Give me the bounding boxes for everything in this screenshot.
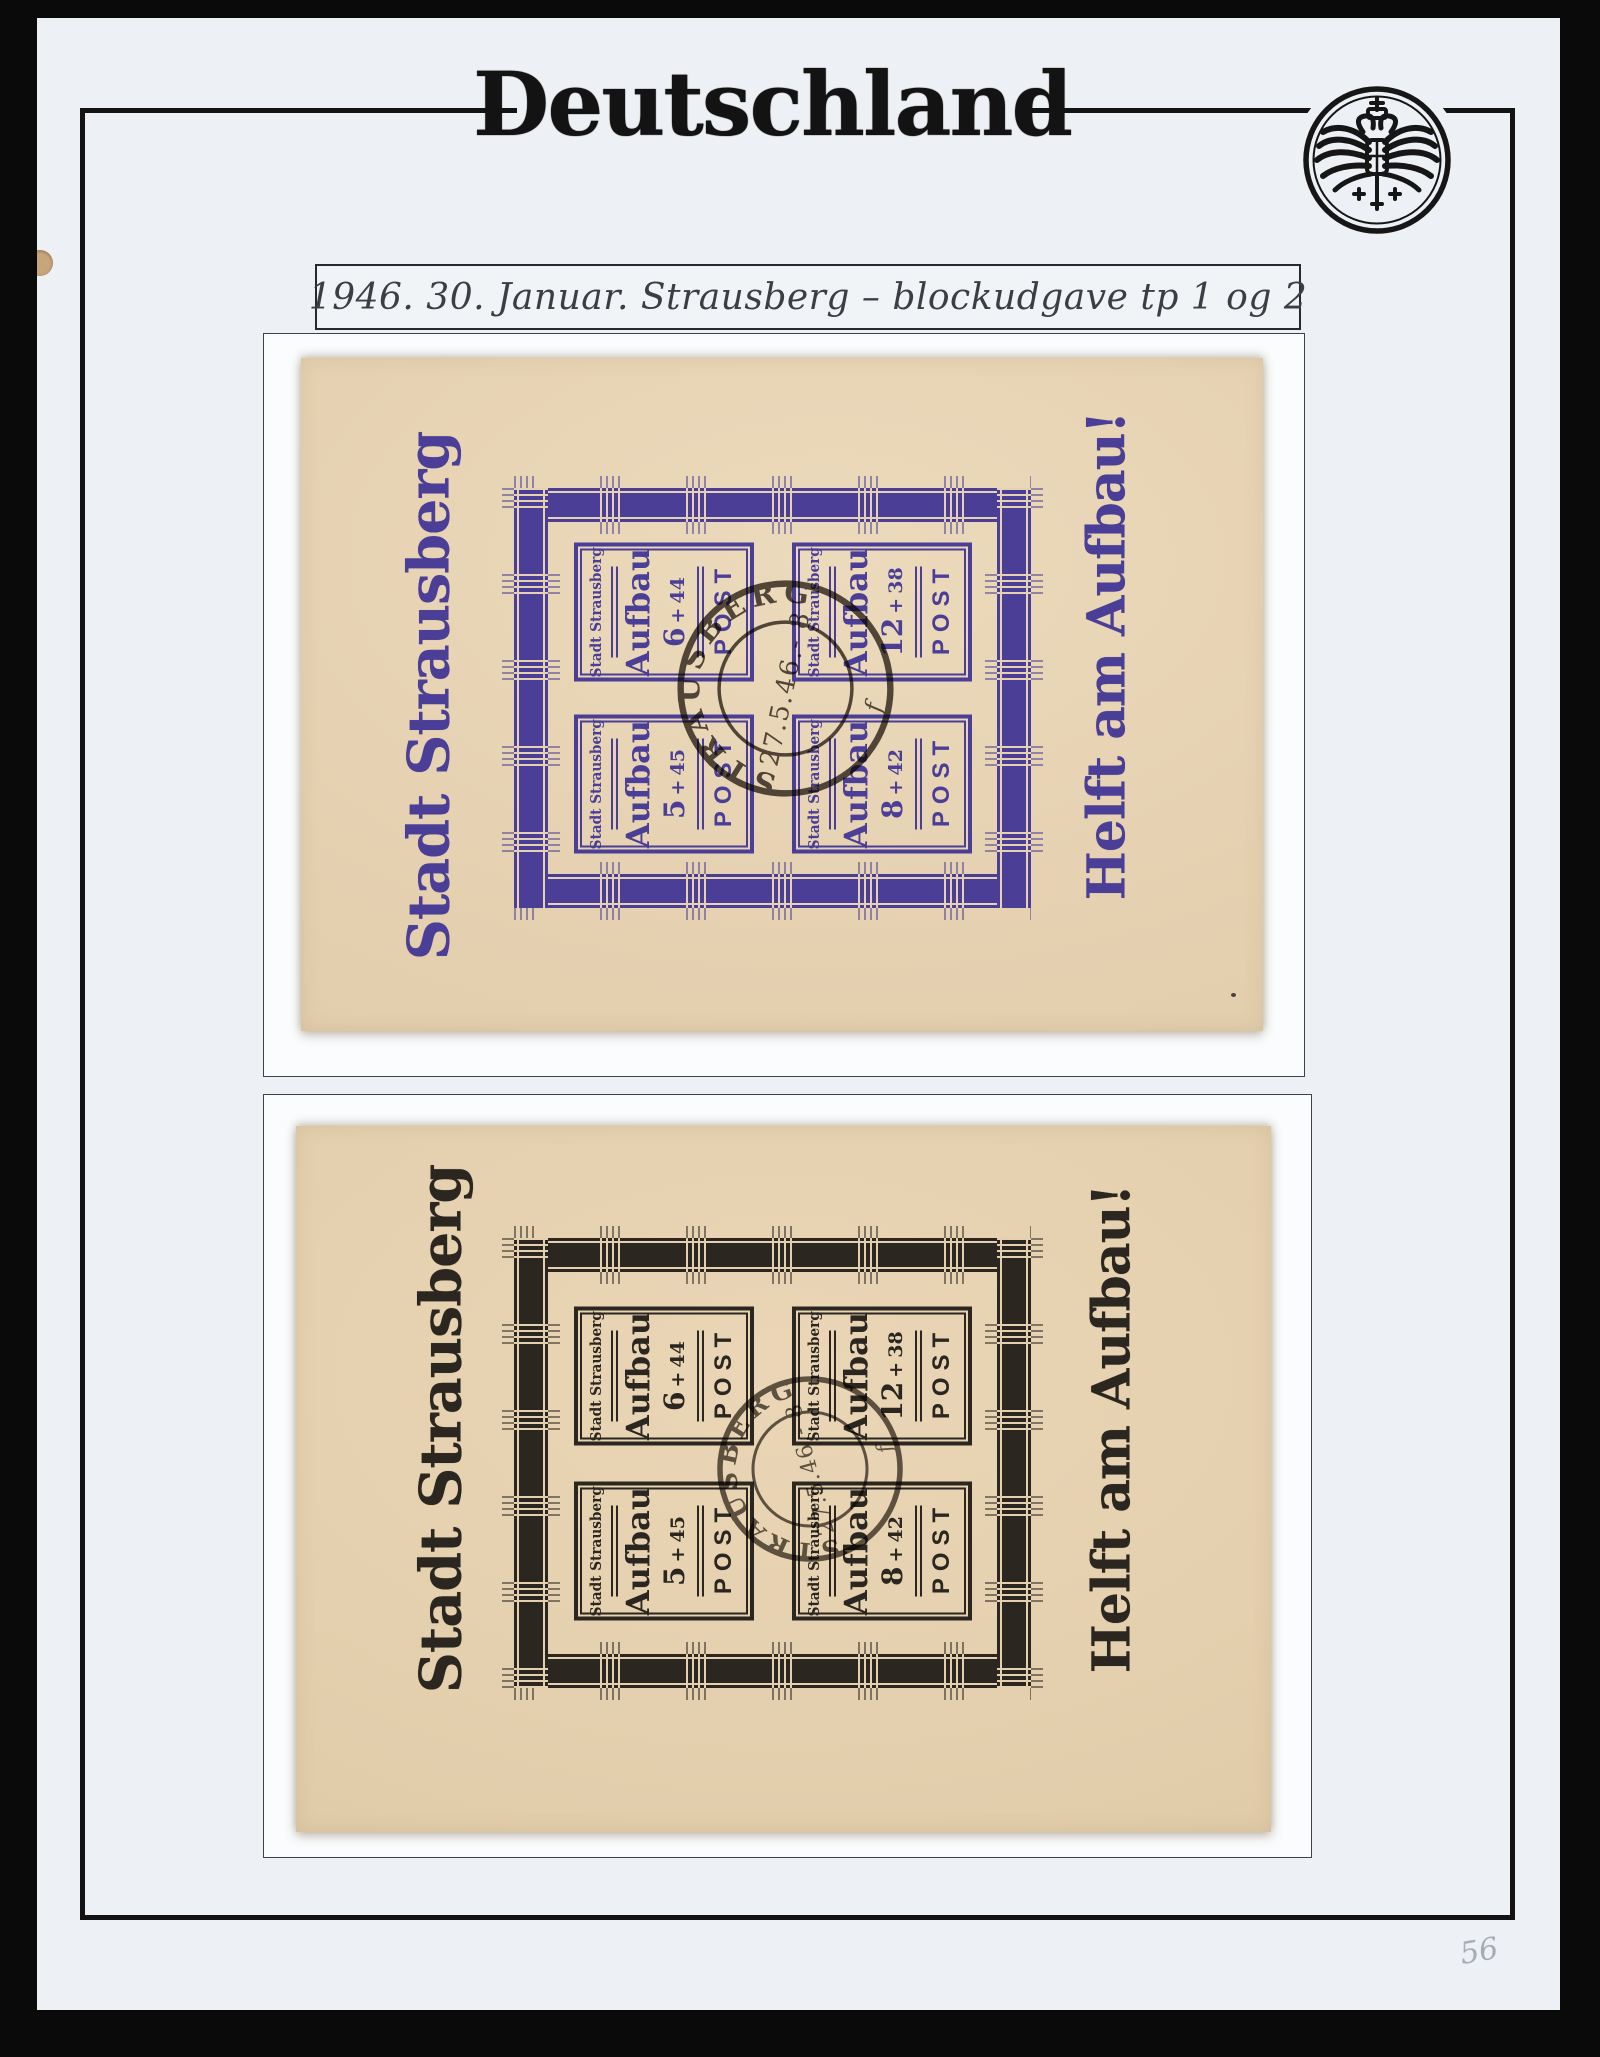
caption-text: 1946. 30. Januar. Strausberg – blockudga… (309, 277, 1307, 318)
plaid-band-right (997, 1238, 1031, 1688)
page-title: Deutschland (517, 40, 1027, 168)
stamp-value: 6 + 44 (658, 1341, 691, 1411)
value-main: 5 (658, 799, 691, 818)
stamp-word: Aufbau (623, 1486, 652, 1614)
stamp-rule (915, 1330, 922, 1421)
value-addon: 45 (667, 1516, 689, 1542)
stamp-rule (697, 1505, 704, 1596)
value-plus: + (667, 1546, 689, 1562)
sheet1-right-text: Helft am Aufbau! (1077, 412, 1138, 901)
plaid-band-top (514, 1238, 1031, 1272)
sheet2-right-text: Helft am Aufbau! (1082, 1185, 1143, 1674)
postmark-date: 27.5.46.- 8 (755, 608, 817, 769)
page-title-text: Deutschland (473, 52, 1071, 156)
stamp-post: POST (927, 562, 955, 662)
value-main: 8 (876, 1566, 909, 1585)
value-main: 8 (876, 799, 909, 818)
stamp-post: POST (927, 734, 955, 834)
plaid-band-left (514, 488, 548, 908)
stamp-word: Aufbau (623, 548, 652, 676)
value-main: 6 (658, 1391, 691, 1410)
stamp-header: Stadt Strausberg (588, 547, 605, 677)
imperial-eagle-icon (1297, 80, 1457, 240)
stamp-rule (610, 567, 617, 658)
caption-box: 1946. 30. Januar. Strausberg – blockudga… (315, 264, 1301, 330)
postmark-date: 27.5.46.- 8 (781, 1400, 840, 1538)
value-plus: + (885, 780, 907, 796)
stamp-rule (915, 739, 922, 830)
value-main: 5 (658, 1566, 691, 1585)
mount-card-2: Stadt Strausberg Helft am Aufbau! Stadt … (263, 1094, 1312, 1858)
stamp-value: 5 + 45 (658, 1516, 691, 1586)
stamp-header: Stadt Strausberg (588, 1485, 605, 1615)
stamp-header: Stadt Strausberg (588, 1310, 605, 1440)
value-addon: 44 (667, 1341, 689, 1367)
stamp-word: Aufbau (623, 720, 652, 848)
plaid-band-bottom (514, 1654, 1031, 1688)
paper-fleck (1231, 993, 1236, 997)
punch-hole (37, 250, 53, 276)
sheet2-left-text: Stadt Strausberg (408, 1165, 475, 1693)
souvenir-sheet-1: Stadt Strausberg Helft am Aufbau! Stadt … (301, 358, 1263, 1031)
stamp-rule (610, 1505, 617, 1596)
eagle-seal (1293, 76, 1461, 244)
stamp-rule (610, 1330, 617, 1421)
postmark-letter: f (859, 696, 889, 716)
stamp-header: Stadt Strausberg (588, 719, 605, 849)
value-addon: 38 (885, 1331, 907, 1357)
plaid-band-left (514, 1238, 548, 1688)
value-addon: 38 (885, 567, 907, 593)
stamp-rule (610, 739, 617, 830)
souvenir-sheet-2: Stadt Strausberg Helft am Aufbau! Stadt … (296, 1126, 1271, 1832)
stamp-post: POST (927, 1500, 955, 1600)
plaid-band-right (997, 488, 1031, 908)
stamp-post: POST (927, 1325, 955, 1425)
postmark-1: STRAUSBERG 27.5.46.- 8 f (647, 550, 923, 826)
sheet1-left-text: Stadt Strausberg (396, 432, 463, 960)
pencil-note: 56 (1457, 1931, 1501, 1972)
plaid-band-bottom (514, 874, 1031, 908)
mount-card-1: Stadt Strausberg Helft am Aufbau! Stadt … (263, 333, 1305, 1077)
plaid-band-top (514, 488, 1031, 522)
stamp-word: Aufbau (623, 1311, 652, 1439)
value-plus: + (667, 1371, 689, 1387)
postmark-letter: f (871, 1439, 898, 1458)
album-page: Deutschland (37, 18, 1560, 2010)
